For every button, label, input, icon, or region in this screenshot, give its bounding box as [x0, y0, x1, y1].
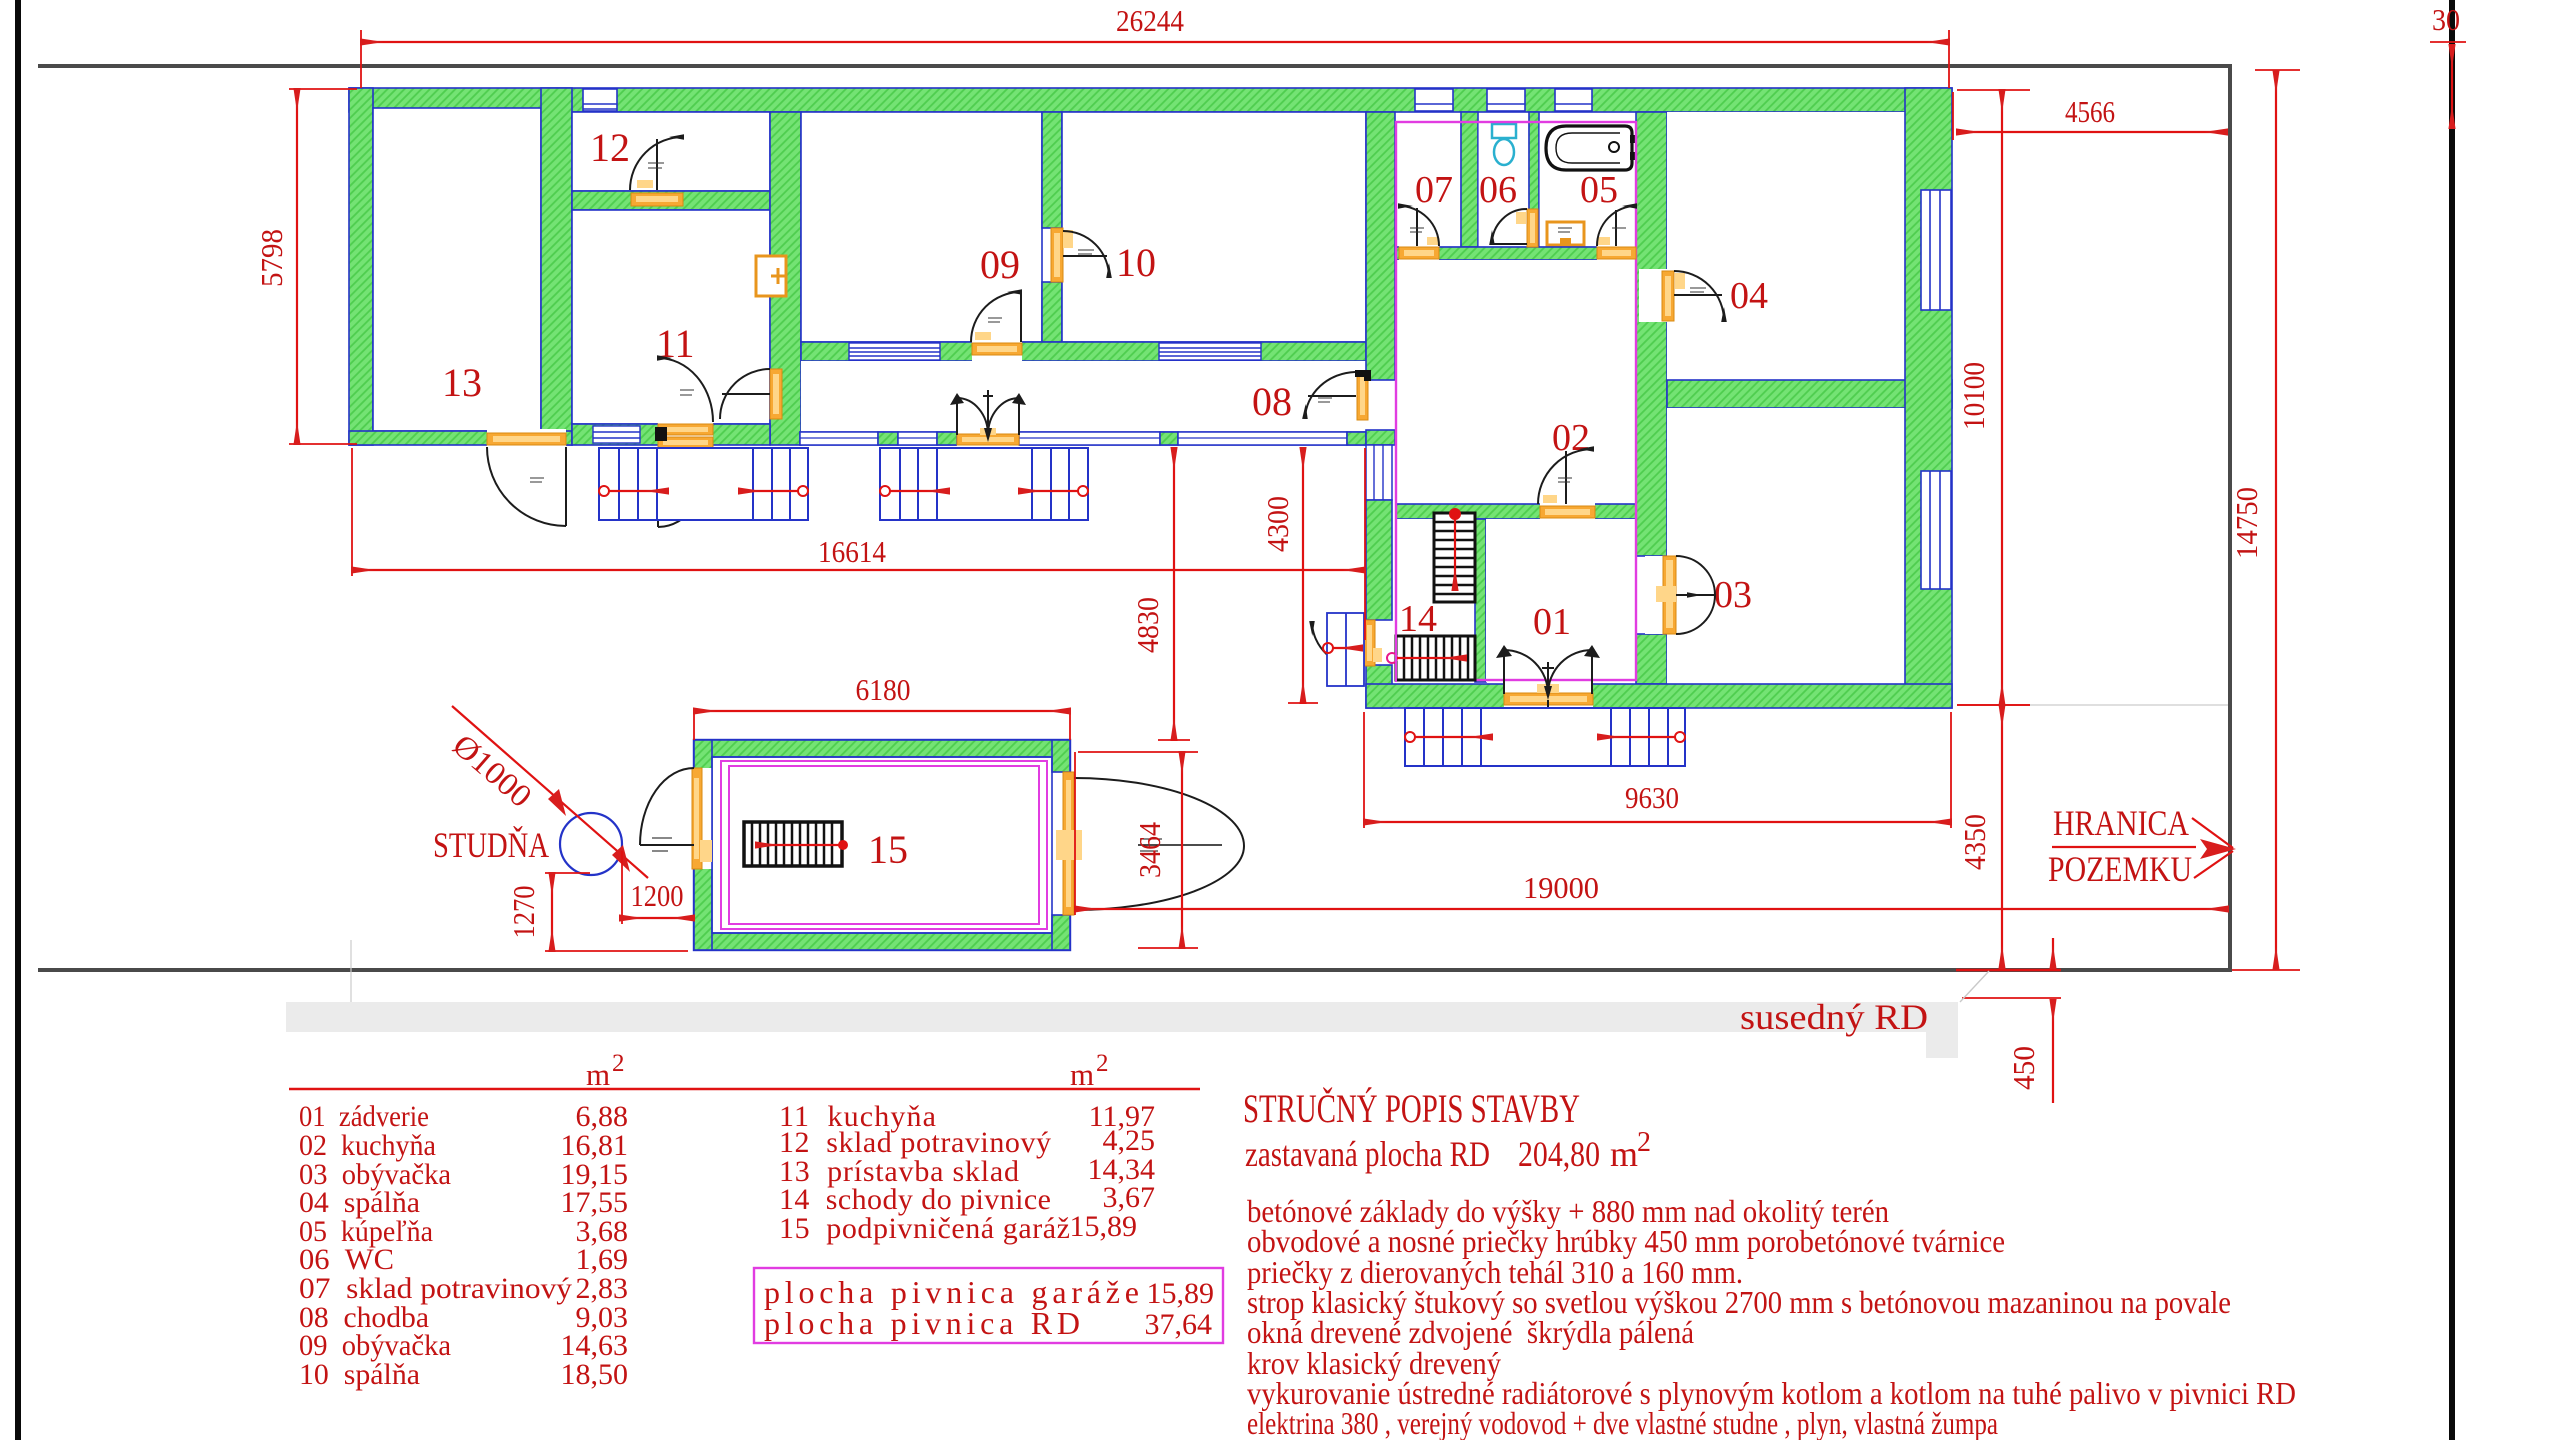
svg-text:10: 10	[1116, 240, 1156, 285]
svg-text:18,50: 18,50	[561, 1358, 629, 1391]
svg-text:4830: 4830	[1130, 597, 1165, 653]
svg-text:15,89: 15,89	[1070, 1210, 1138, 1243]
svg-text:STUDŇA: STUDŇA	[433, 825, 549, 865]
svg-text:elektrina 380 , verejný vodovo: elektrina 380 , verejný vodovod + dve vl…	[1247, 1405, 1998, 1440]
svg-text:4300: 4300	[1260, 496, 1295, 552]
svg-text:4566: 4566	[2065, 94, 2115, 129]
svg-text:HRANICA: HRANICA	[2053, 803, 2189, 843]
svg-text:16614: 16614	[818, 534, 886, 569]
svg-text:14750: 14750	[2229, 487, 2264, 559]
svg-text:37,64: 37,64	[1145, 1308, 1213, 1341]
svg-text:zastavaná plocha RD: zastavaná plocha RD	[1245, 1134, 1490, 1174]
svg-text:10100: 10100	[1956, 362, 1991, 430]
svg-text:01: 01	[1533, 601, 1571, 643]
svg-text:POZEMKU: POZEMKU	[2048, 849, 2192, 889]
svg-text:14: 14	[1399, 598, 1437, 640]
svg-text:15 podpivničená garáž: 15 podpivničená garáž	[779, 1212, 1070, 1245]
svg-text:3464: 3464	[1132, 822, 1167, 878]
svg-text:susedný RD: susedný RD	[1740, 997, 1928, 1037]
svg-text:06: 06	[1479, 169, 1517, 211]
svg-text:m: m	[586, 1057, 610, 1092]
svg-text:5798: 5798	[254, 229, 289, 287]
svg-text:1200: 1200	[631, 878, 684, 913]
svg-text:450: 450	[2006, 1046, 2041, 1090]
svg-text:204,80: 204,80	[1518, 1134, 1600, 1174]
svg-text:05: 05	[1580, 169, 1618, 211]
svg-text:2: 2	[1637, 1127, 1651, 1158]
svg-text:4350: 4350	[1957, 814, 1992, 870]
svg-text:9630: 9630	[1625, 780, 1679, 815]
svg-text:m: m	[1070, 1057, 1094, 1092]
svg-text:07: 07	[1415, 169, 1453, 211]
svg-text:13: 13	[442, 360, 482, 405]
svg-text:08: 08	[1252, 379, 1292, 424]
svg-text:m: m	[1610, 1134, 1638, 1174]
svg-text:STRUČNÝ POPIS STAVBY: STRUČNÝ POPIS STAVBY	[1243, 1086, 1580, 1131]
svg-text:15,89: 15,89	[1147, 1277, 1215, 1310]
svg-text:6180: 6180	[856, 672, 911, 707]
svg-text:12: 12	[590, 125, 630, 170]
svg-text:10 spálňa: 10 spálňa	[299, 1358, 420, 1391]
svg-text:19000: 19000	[1523, 870, 1599, 905]
svg-text:2: 2	[1096, 1050, 1109, 1077]
svg-text:15: 15	[868, 827, 908, 872]
svg-text:04: 04	[1730, 275, 1768, 317]
svg-text:2: 2	[612, 1050, 625, 1077]
svg-text:30: 30	[2432, 2, 2460, 37]
svg-text:03: 03	[1714, 574, 1752, 616]
svg-text:09: 09	[980, 242, 1020, 287]
svg-text:11: 11	[656, 321, 695, 366]
svg-text:1270: 1270	[506, 886, 541, 939]
svg-text:26244: 26244	[1116, 3, 1184, 38]
